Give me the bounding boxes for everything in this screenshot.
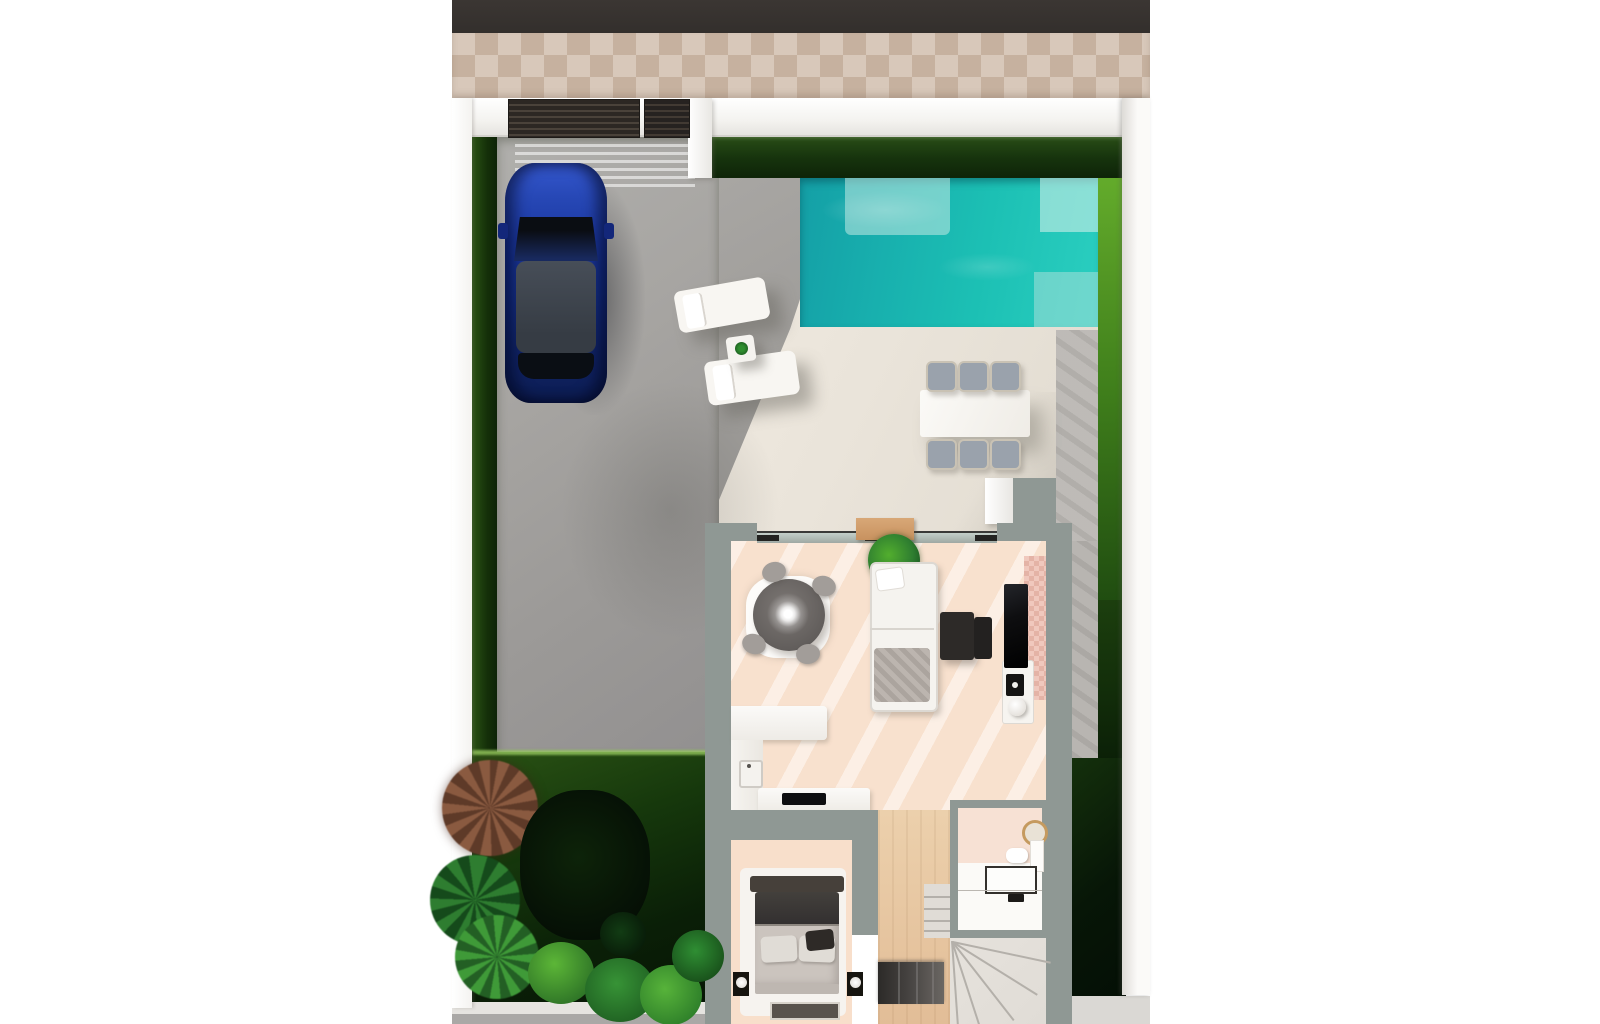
hedge-top <box>710 135 1122 178</box>
coffee-table-large <box>940 612 974 660</box>
bed-headboard <box>750 876 844 892</box>
bush-1 <box>528 942 594 1004</box>
car-roof <box>516 261 596 353</box>
dining-chair-6 <box>990 439 1021 470</box>
stairs-flight-dark <box>878 962 944 1004</box>
car-windshield <box>514 217 598 261</box>
car <box>505 163 607 403</box>
outdoor-dining-table <box>920 390 1030 437</box>
bed-foot <box>755 984 839 994</box>
bush-5 <box>600 912 646 956</box>
entrance-gate <box>508 99 688 136</box>
sofa-pillow <box>875 566 906 592</box>
bed-pillow-dark <box>805 929 835 952</box>
sidewalk-tiles <box>452 33 1150 98</box>
table-sparkle <box>766 592 810 636</box>
bed-blanket <box>755 892 839 926</box>
shower-glass-line <box>958 890 1042 891</box>
step-line-2 <box>924 908 950 910</box>
gate-panel-small <box>644 99 690 138</box>
wall-bedroom-east <box>852 840 878 935</box>
gate-panel-large <box>508 99 640 138</box>
decor-vase <box>1008 698 1026 716</box>
stone-path-upper <box>1056 330 1098 541</box>
step-line-4 <box>924 930 950 932</box>
lounger-plant <box>735 342 748 355</box>
pool-step-a <box>845 178 950 235</box>
car-rear-window <box>518 353 594 379</box>
door-frame-3 <box>975 535 997 541</box>
sofa-blanket <box>874 648 930 702</box>
shower-mixer <box>1008 894 1024 902</box>
lawn-lit-edge <box>472 750 710 755</box>
dark-step-3 <box>932 962 934 1004</box>
house-wall-top-left <box>705 523 757 541</box>
lawn-dark-corner <box>1072 758 1126 998</box>
wall-corner-post <box>688 98 712 178</box>
door-frame-1 <box>757 535 779 541</box>
hedge-left <box>472 135 497 755</box>
tv-screen <box>1004 584 1028 668</box>
dark-step-2 <box>916 962 918 1004</box>
bed-pillow-1 <box>760 935 797 963</box>
bush-4 <box>672 930 724 982</box>
kitchen-hob <box>782 793 826 805</box>
porch-pillar <box>985 478 1013 524</box>
car-mirror-right <box>604 223 614 239</box>
dining-chair-1 <box>926 361 957 392</box>
kitchen-faucet <box>747 764 751 768</box>
kitchen-sink <box>739 760 763 788</box>
path-bottom-right <box>1072 996 1150 1024</box>
car-mirror-left <box>498 223 508 239</box>
scene <box>0 0 1600 1024</box>
sofa-cushion-line <box>870 628 934 630</box>
house-wall-top-right <box>997 523 1072 541</box>
tv-speaker-dot <box>1012 682 1018 688</box>
kitchen-counter-horizontal <box>731 706 827 740</box>
perimeter-wall-right <box>1122 98 1150 995</box>
dining-chair-2 <box>958 361 989 392</box>
bedroom-rug <box>770 1002 840 1020</box>
house-wall-east <box>1046 523 1072 1024</box>
dining-chair-5 <box>958 439 989 470</box>
stone-path-lower <box>1072 541 1098 758</box>
coffee-table-small <box>974 617 992 659</box>
step-line-3 <box>924 920 950 922</box>
lamp-left <box>736 977 747 988</box>
pool-step-b <box>1040 178 1102 232</box>
dark-step-1 <box>898 962 900 1004</box>
floorplan-render <box>0 0 1600 1024</box>
wall-living-south <box>731 810 878 840</box>
lamp-right <box>850 977 861 988</box>
dining-chair-4 <box>926 439 957 470</box>
bathroom-toilet <box>1006 848 1028 863</box>
step-line-1 <box>924 896 950 898</box>
dining-chair-3 <box>990 361 1021 392</box>
street-road <box>452 0 1150 35</box>
palm-green-2 <box>455 915 539 999</box>
pool-step-c <box>1034 272 1102 327</box>
